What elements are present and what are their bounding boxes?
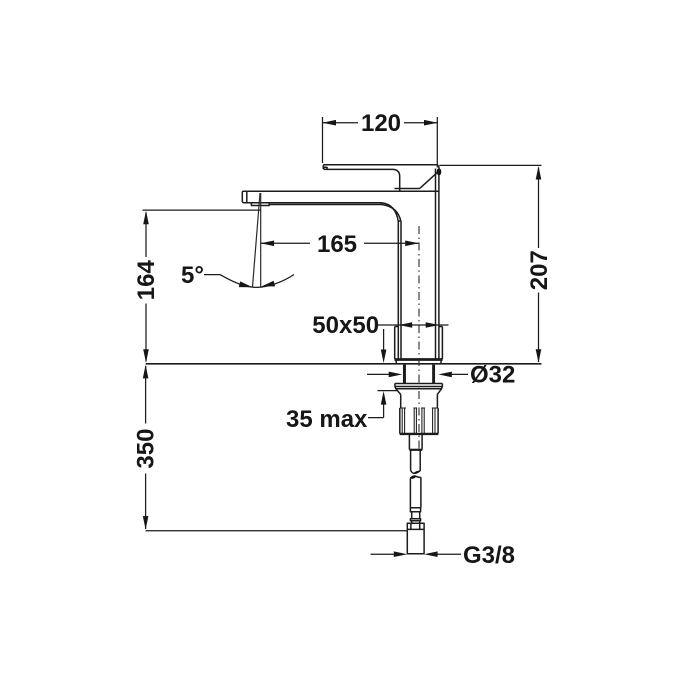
svg-text:120: 120	[361, 110, 401, 137]
svg-text:164: 164	[133, 260, 160, 301]
svg-text:5°: 5°	[181, 262, 204, 289]
svg-text:165: 165	[317, 231, 357, 258]
svg-text:50x50: 50x50	[312, 312, 379, 339]
svg-text:207: 207	[526, 250, 553, 290]
svg-text:Ø32: Ø32	[470, 362, 515, 389]
svg-text:350: 350	[133, 429, 160, 469]
svg-text:35 max: 35 max	[286, 406, 368, 433]
svg-text:G3/8: G3/8	[463, 542, 515, 569]
